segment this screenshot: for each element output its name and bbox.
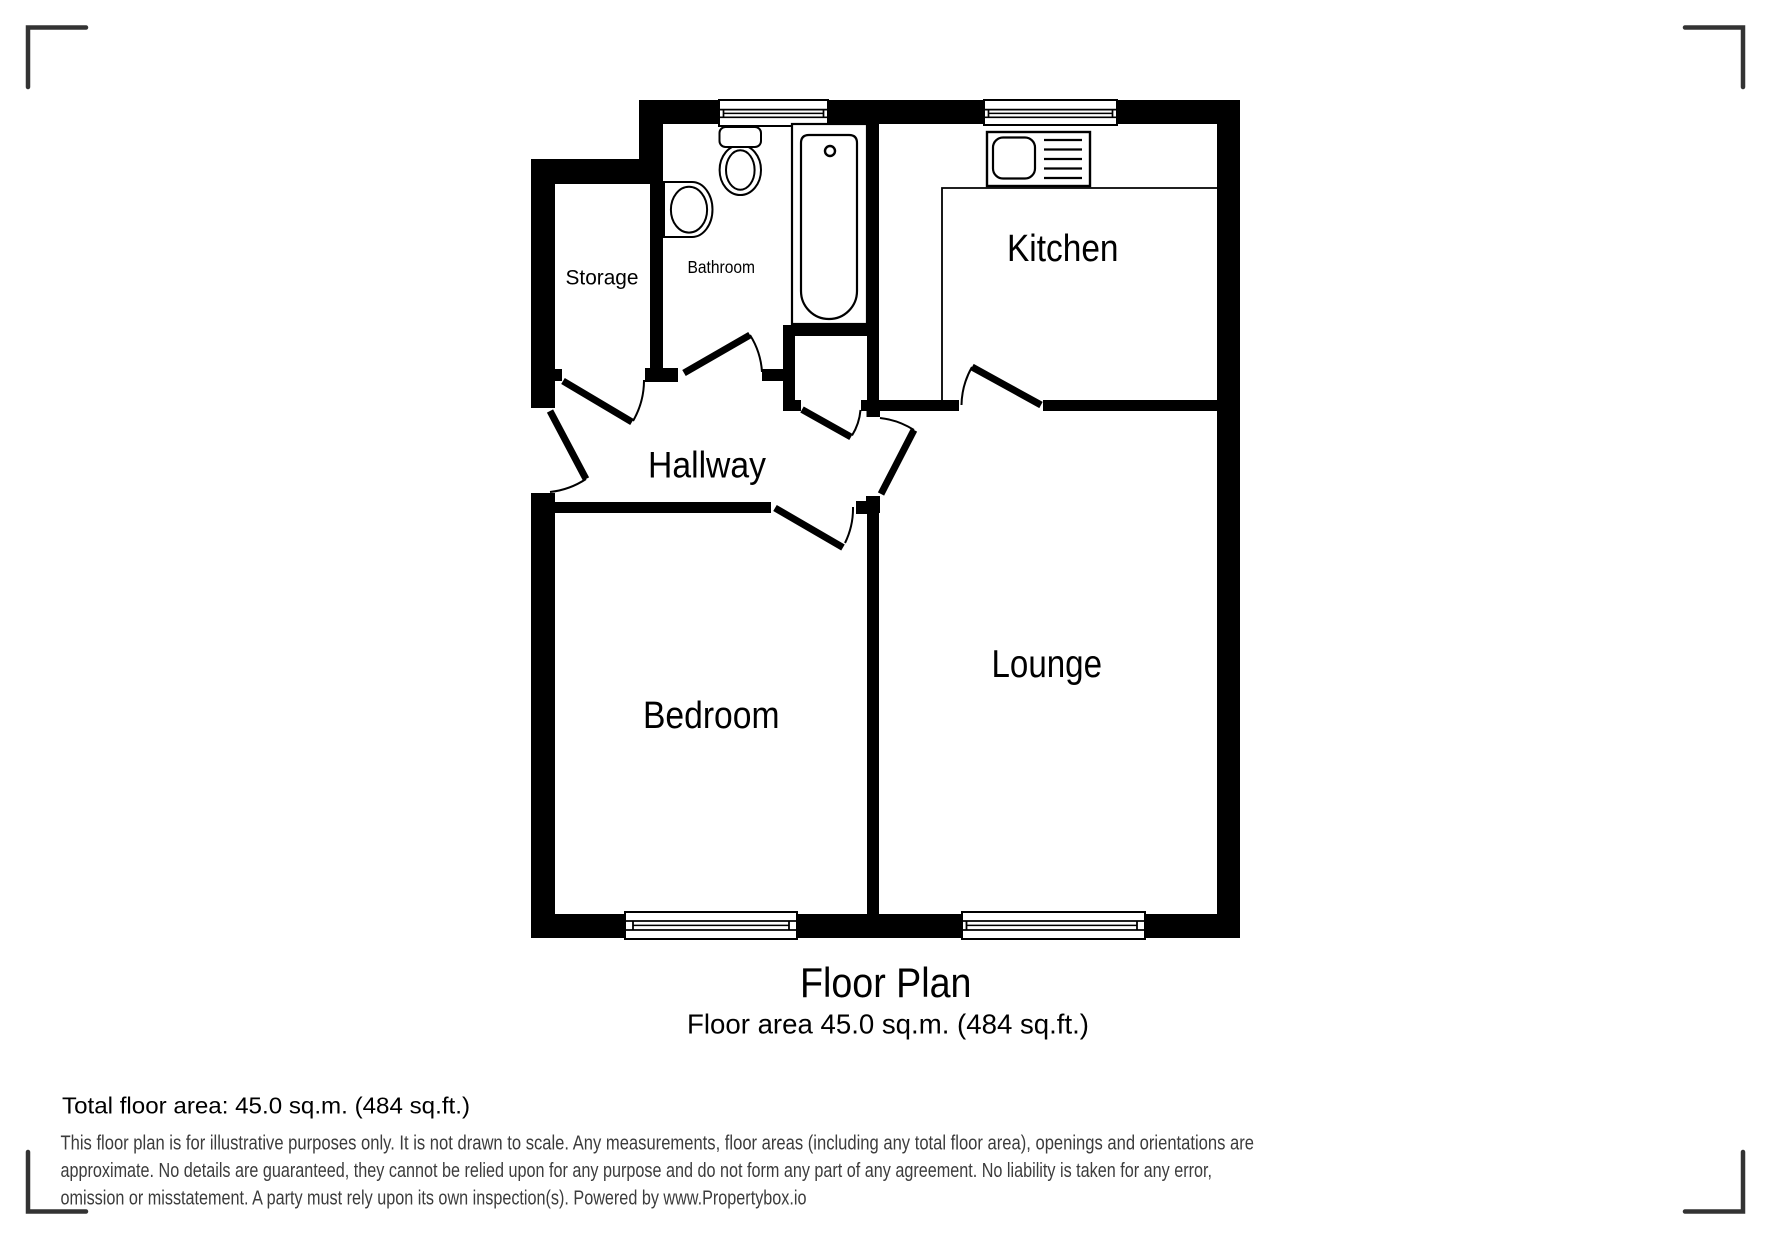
svg-text:omission or misstatement. A pa: omission or misstatement. A party must r… [61, 1188, 807, 1210]
svg-text:This floor plan is for illustr: This floor plan is for illustrative purp… [61, 1133, 1255, 1155]
svg-text:Bathroom: Bathroom [688, 257, 756, 277]
svg-text:Kitchen: Kitchen [1007, 228, 1119, 270]
svg-text:Storage: Storage [566, 266, 639, 290]
svg-text:Bedroom: Bedroom [643, 695, 780, 737]
svg-text:Floor Plan: Floor Plan [800, 959, 972, 1006]
svg-text:Floor area 45.0 sq.m. (484 sq.: Floor area 45.0 sq.m. (484 sq.ft.) [687, 1009, 1089, 1040]
svg-text:Lounge: Lounge [992, 643, 1103, 686]
svg-text:Total floor area: 45.0 sq.m. (: Total floor area: 45.0 sq.m. (484 sq.ft.… [62, 1093, 470, 1119]
svg-text:approximate. No details are gu: approximate. No details are guaranteed, … [61, 1160, 1213, 1182]
svg-text:Hallway: Hallway [648, 445, 766, 486]
